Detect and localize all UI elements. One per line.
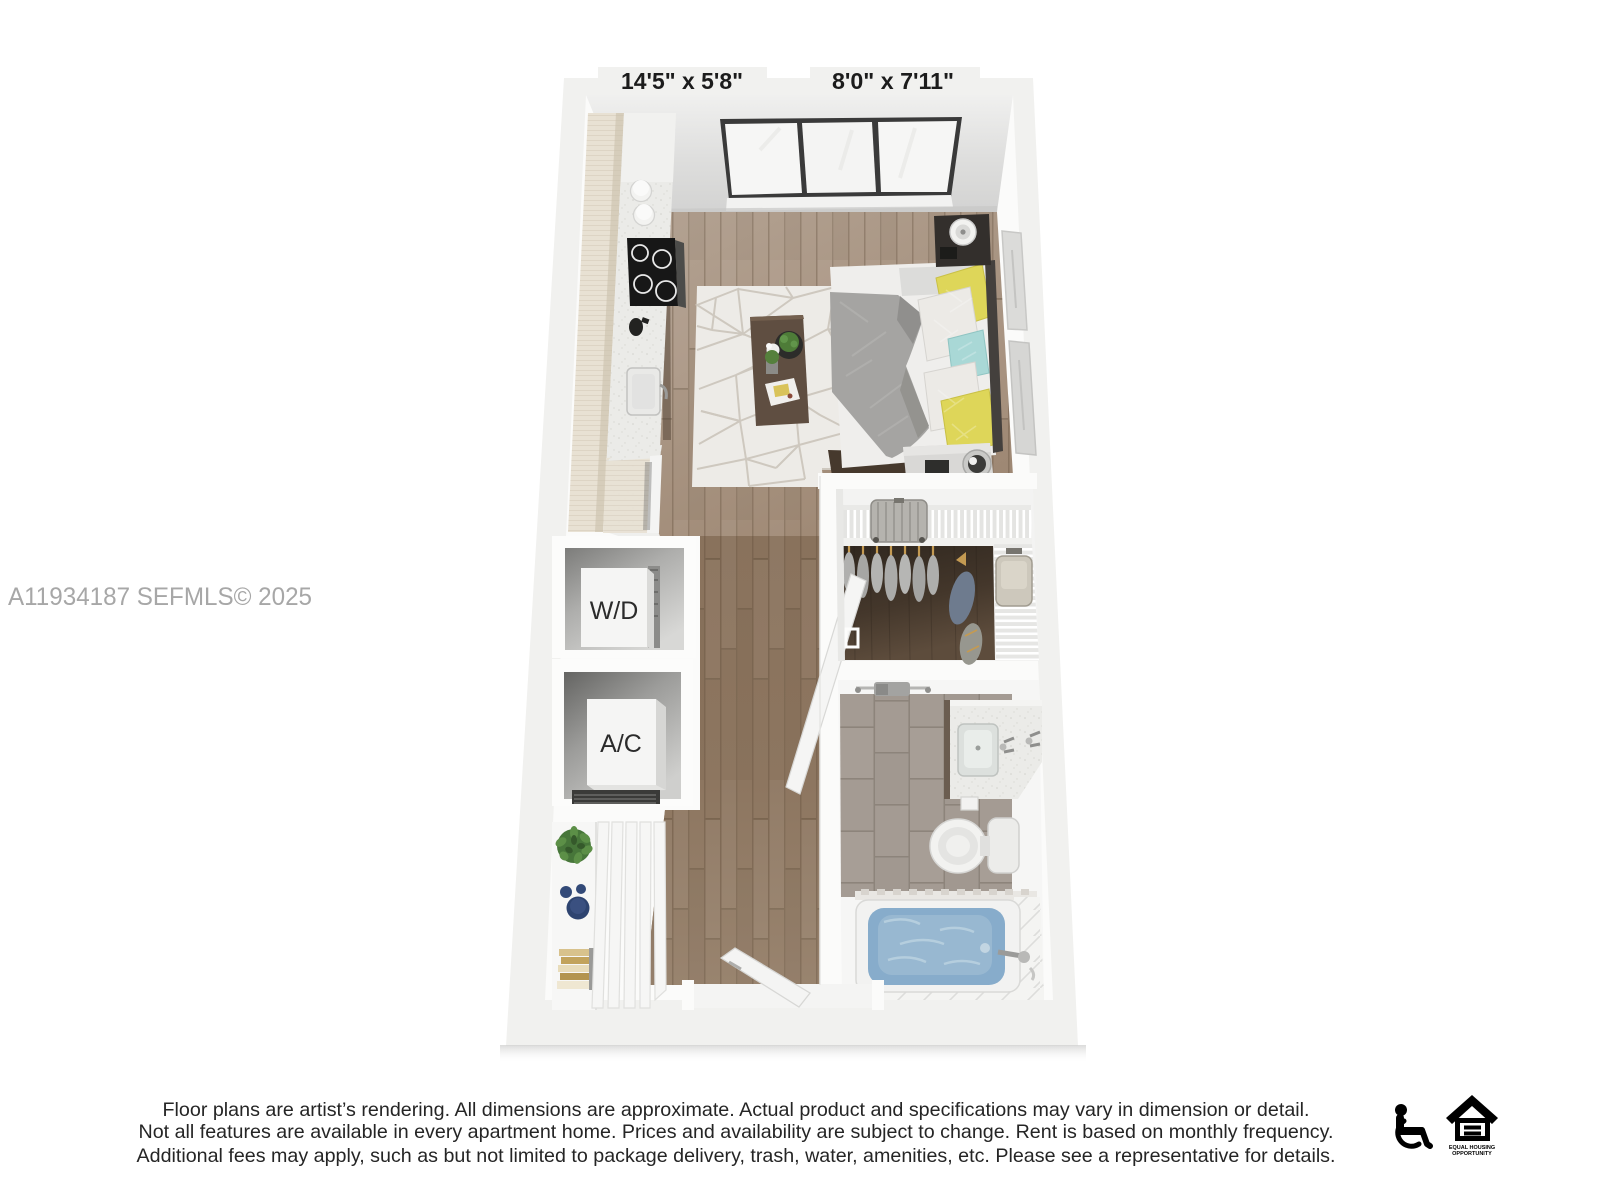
svg-text:W/D: W/D <box>590 597 639 625</box>
svg-text:Floor plans are artist’s rende: Floor plans are artist’s rendering. All … <box>163 1099 1310 1121</box>
svg-text:A11934187 SEFMLS© 2025: A11934187 SEFMLS© 2025 <box>8 583 312 611</box>
svg-text:Additional fees may apply, suc: Additional fees may apply, such as but n… <box>137 1145 1336 1167</box>
svg-text:A/C: A/C <box>600 730 642 758</box>
svg-text:OPPORTUNITY: OPPORTUNITY <box>1452 1151 1492 1157</box>
svg-text:8'0" x 7'11": 8'0" x 7'11" <box>832 68 954 94</box>
svg-text:Not all features are available: Not all features are available in every … <box>139 1121 1334 1143</box>
svg-text:14'5" x 5'8": 14'5" x 5'8" <box>621 68 743 94</box>
